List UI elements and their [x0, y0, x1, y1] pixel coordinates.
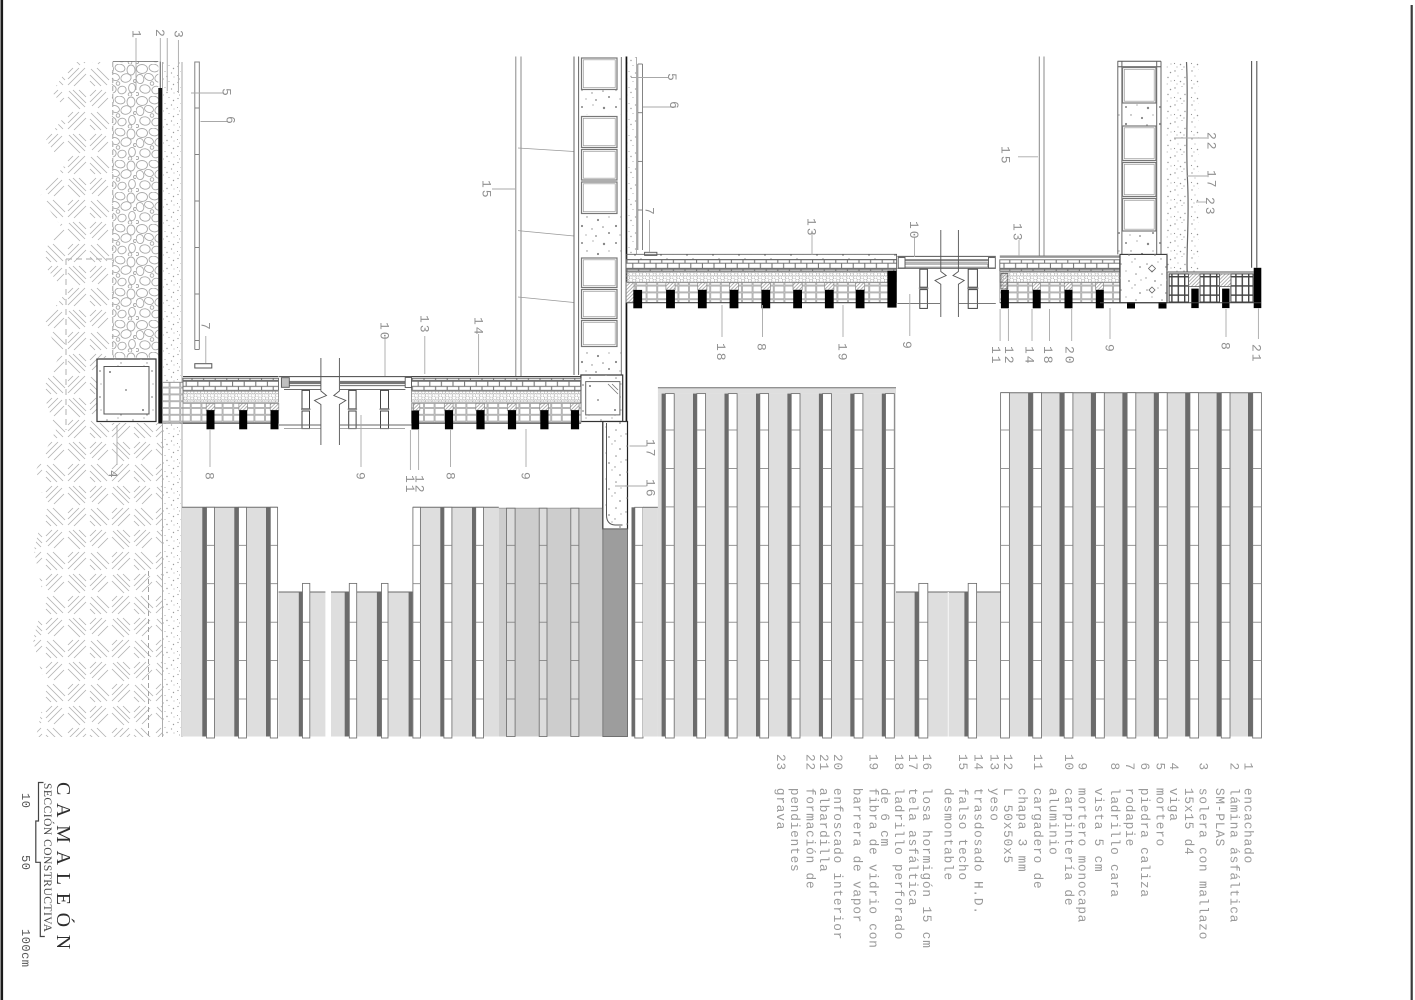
svg-text:desmontable: desmontable — [940, 754, 955, 881]
svg-text:1 encachado: 1 encachado — [1240, 754, 1255, 864]
svg-text:20: 20 — [1062, 346, 1077, 366]
svg-text:5: 5 — [664, 73, 679, 83]
svg-text:12: 12 — [412, 475, 427, 495]
svg-text:10: 10 — [906, 221, 921, 241]
svg-text:15: 15 — [998, 146, 1013, 166]
svg-text:16 losa hormigón 15 cm: 16 losa hormigón 15 cm — [919, 754, 934, 949]
svg-text:15: 15 — [479, 180, 494, 200]
svg-text:2 lámina ásfáltica: 2 lámina ásfáltica — [1226, 754, 1241, 923]
svg-text:CAMALEÓN: CAMALEÓN — [52, 782, 76, 957]
svg-text:18: 18 — [713, 343, 728, 363]
svg-text:6: 6 — [223, 116, 238, 126]
svg-text:100cm: 100cm — [18, 929, 32, 968]
svg-text:14: 14 — [470, 317, 485, 337]
svg-text:9: 9 — [518, 472, 533, 482]
svg-text:5 mortero: 5 mortero — [1152, 754, 1167, 847]
svg-text:7: 7 — [642, 207, 657, 217]
svg-text:6 piedra caliza: 6 piedra caliza — [1137, 754, 1152, 898]
svg-text:8: 8 — [754, 343, 769, 353]
svg-text:10: 10 — [18, 793, 32, 808]
svg-text:4: 4 — [105, 470, 120, 480]
svg-text:15x15 d4: 15x15 d4 — [1181, 754, 1196, 856]
svg-text:SECCIÓN CONSTRUCTIVA: SECCIÓN CONSTRUCTIVA — [41, 783, 55, 933]
svg-text:1: 1 — [129, 30, 144, 40]
svg-text:17 tela asfáltica: 17 tela asfáltica — [905, 754, 920, 906]
svg-text:8 ladrillo cara: 8 ladrillo cara — [1107, 754, 1122, 898]
svg-text:2: 2 — [152, 29, 167, 39]
svg-text:23 grava: 23 grava — [773, 754, 788, 830]
svg-text:8: 8 — [443, 472, 458, 482]
svg-text:8: 8 — [202, 472, 217, 482]
svg-text:22: 22 — [1203, 132, 1218, 152]
svg-text:3: 3 — [170, 30, 185, 40]
svg-text:12: 12 — [1001, 346, 1016, 366]
svg-text:17: 17 — [1203, 170, 1218, 190]
svg-text:13: 13 — [804, 218, 819, 238]
svg-text:22 formación de: 22 formación de — [802, 754, 817, 889]
svg-text:6: 6 — [666, 101, 681, 111]
svg-text:19 fibra de vidrio con: 19 fibra de vidrio con — [865, 754, 880, 949]
svg-text:9: 9 — [899, 341, 914, 351]
svg-text:13 yeso: 13 yeso — [986, 754, 1001, 822]
svg-text:13: 13 — [1010, 223, 1025, 243]
svg-text:9: 9 — [353, 472, 368, 482]
svg-text:barrera de vapor: barrera de vapor — [849, 754, 864, 923]
svg-text:8: 8 — [1218, 342, 1233, 352]
svg-text:SM-PLAS: SM-PLAS — [1212, 754, 1227, 847]
svg-text:17: 17 — [643, 439, 658, 459]
svg-text:11 cargadero de: 11 cargadero de — [1030, 754, 1045, 889]
svg-text:50: 50 — [18, 855, 32, 870]
svg-text:23: 23 — [1202, 197, 1217, 217]
svg-text:7 rodapie: 7 rodapie — [1122, 754, 1137, 847]
svg-text:14: 14 — [1022, 346, 1037, 366]
svg-text:7: 7 — [197, 322, 212, 332]
svg-text:10 carpintería de: 10 carpintería de — [1061, 754, 1076, 906]
svg-text:16: 16 — [643, 479, 658, 499]
svg-text:9: 9 — [1102, 344, 1117, 354]
svg-text:11: 11 — [988, 346, 1003, 366]
svg-text:aluminio: aluminio — [1045, 754, 1060, 856]
svg-text:3 solera con mallazo: 3 solera con mallazo — [1195, 754, 1210, 940]
svg-text:14 trasdosado H.D.: 14 trasdosado H.D. — [970, 754, 985, 915]
svg-text:chapa 3 mm: chapa 3 mm — [1014, 754, 1029, 873]
svg-text:15 falso techo: 15 falso techo — [955, 754, 970, 881]
svg-text:10: 10 — [377, 322, 392, 342]
svg-text:pendientes: pendientes — [787, 754, 802, 873]
svg-text:19: 19 — [835, 343, 850, 363]
svg-text:20 enfoscado interior: 20 enfoscado interior — [830, 754, 845, 940]
svg-text:18 ladrillo perforado: 18 ladrillo perforado — [891, 754, 906, 940]
svg-text:13: 13 — [417, 315, 432, 335]
svg-text:5: 5 — [219, 88, 234, 98]
svg-text:18: 18 — [1040, 346, 1055, 366]
svg-text:21: 21 — [1249, 344, 1264, 364]
svg-text:vista 5 cm: vista 5 cm — [1091, 754, 1106, 873]
